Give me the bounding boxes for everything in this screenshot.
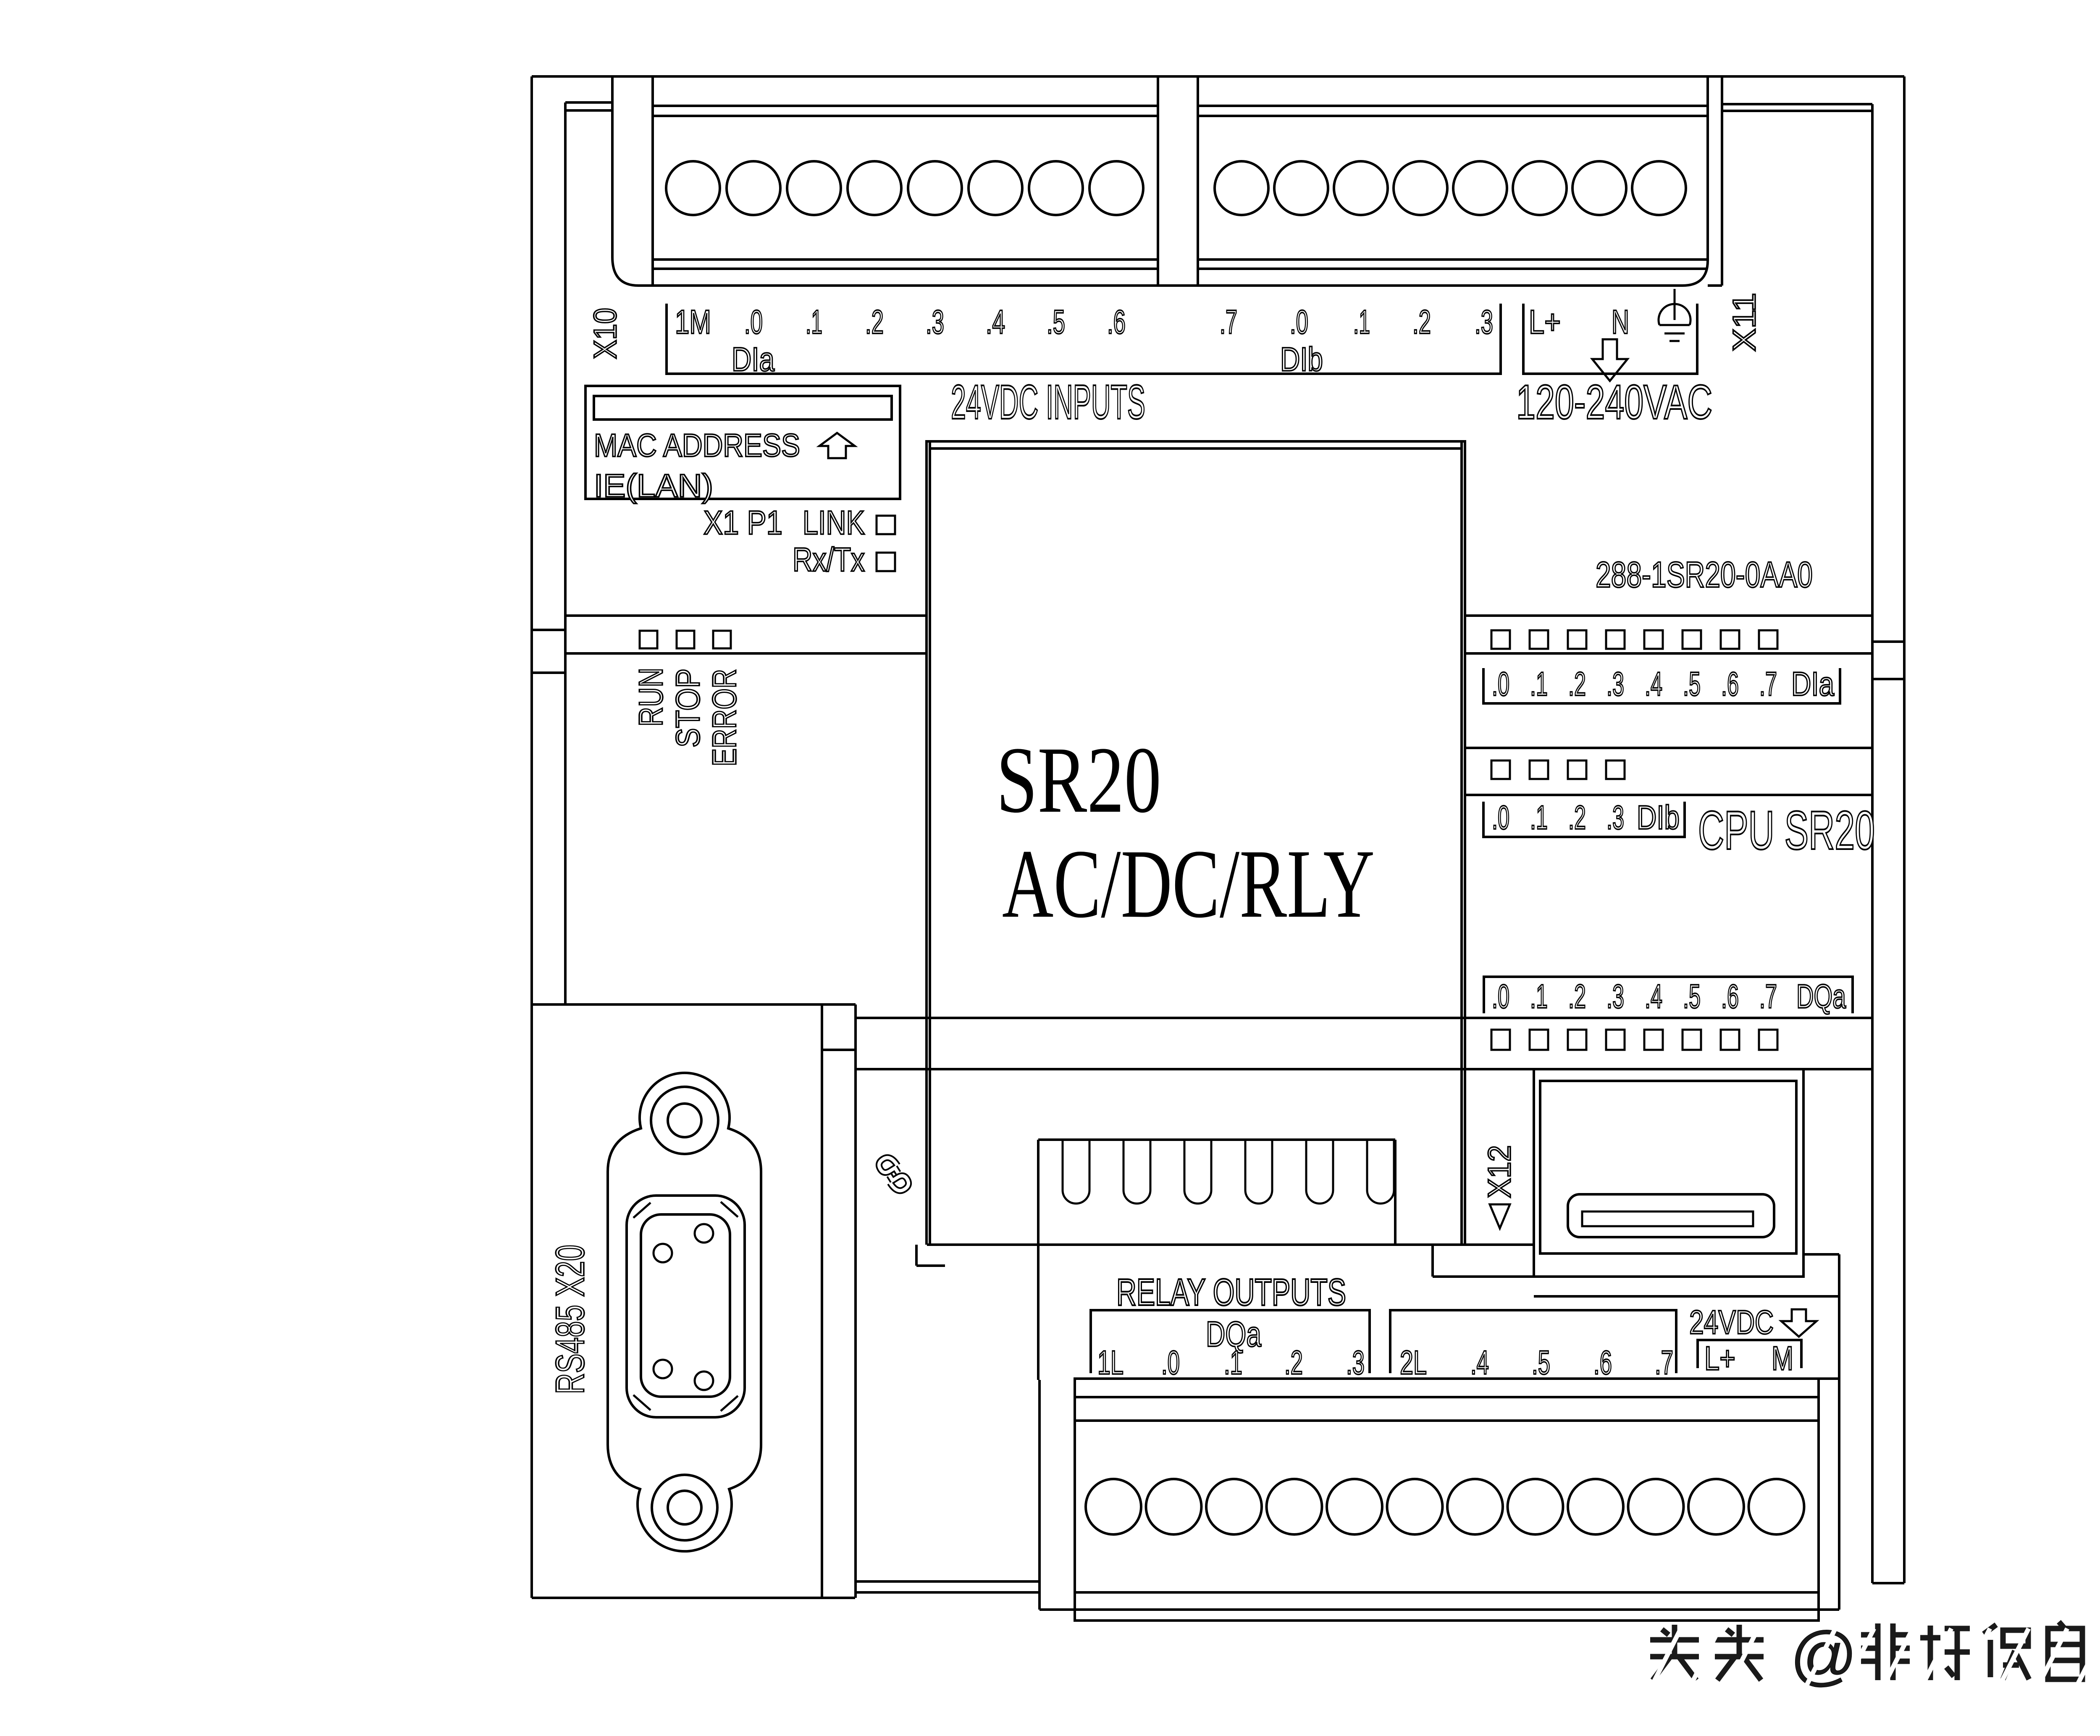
svg-text:N: N [1612, 303, 1629, 341]
svg-text:IE(LAN): IE(LAN) [594, 468, 713, 504]
svg-text:.0: .0 [1290, 303, 1308, 341]
svg-text:.7: .7 [1655, 1344, 1673, 1381]
svg-text:.3: .3 [926, 303, 944, 341]
svg-text:.1: .1 [1224, 1344, 1242, 1381]
svg-text:ERROR: ERROR [706, 669, 743, 766]
svg-text:1L: 1L [1097, 1344, 1123, 1381]
svg-text:DIb: DIb [1637, 799, 1680, 836]
svg-text:.1: .1 [1530, 978, 1548, 1015]
svg-text:.0: .0 [1492, 799, 1509, 836]
svg-text:DIa: DIa [732, 341, 774, 378]
svg-text:1M: 1M [675, 303, 711, 341]
svg-text:.6: .6 [1107, 303, 1126, 341]
svg-text:X1 P1: X1 P1 [703, 504, 782, 541]
svg-text:RS485 X20: RS485 X20 [548, 1245, 593, 1394]
svg-text:.1: .1 [1353, 303, 1370, 341]
svg-text:24VDC: 24VDC [1689, 1303, 1774, 1341]
svg-text:.2: .2 [1568, 665, 1586, 703]
svg-text:.2: .2 [1284, 1344, 1303, 1381]
svg-text:.1: .1 [1530, 799, 1548, 836]
svg-text:120-240VAC: 120-240VAC [1516, 375, 1712, 429]
svg-text:24VDC INPUTS: 24VDC INPUTS [951, 375, 1145, 429]
svg-text:.0: .0 [744, 303, 763, 341]
svg-text:.4: .4 [1645, 665, 1662, 703]
svg-text:.7: .7 [1220, 303, 1237, 341]
svg-text:M: M [1772, 1340, 1793, 1377]
svg-text:L+: L+ [1529, 303, 1561, 341]
svg-text:AC/DC/RLY: AC/DC/RLY [1002, 829, 1375, 938]
svg-text:.2: .2 [865, 303, 884, 341]
svg-text:Rx/Tx: Rx/Tx [793, 541, 865, 578]
svg-text:DIb: DIb [1280, 341, 1323, 378]
svg-text:.2: .2 [1568, 799, 1586, 836]
svg-text:X12: X12 [1482, 1145, 1517, 1198]
svg-text:.4: .4 [1645, 978, 1662, 1015]
svg-text:2L: 2L [1400, 1344, 1427, 1381]
svg-text:.3: .3 [1475, 303, 1493, 341]
svg-text:LINK: LINK [803, 504, 865, 541]
svg-text:.5: .5 [1047, 303, 1065, 341]
svg-text:.1: .1 [1530, 665, 1548, 703]
svg-text:.3: .3 [1606, 665, 1624, 703]
svg-text:.0: .0 [1492, 978, 1509, 1015]
svg-text:SR20: SR20 [996, 727, 1161, 832]
svg-text:.6: .6 [1593, 1344, 1612, 1381]
svg-text:MAC ADDRESS: MAC ADDRESS [594, 427, 800, 464]
svg-text:RUN: RUN [632, 668, 669, 726]
svg-text:.3: .3 [1346, 1344, 1365, 1381]
svg-text:.2: .2 [1568, 978, 1586, 1015]
svg-text:DQa: DQa [1796, 978, 1846, 1015]
svg-text:X10: X10 [588, 308, 623, 359]
svg-text:.6: .6 [1721, 665, 1739, 703]
svg-text:.4: .4 [986, 303, 1005, 341]
svg-text:.3: .3 [1606, 799, 1624, 836]
svg-text:.1: .1 [806, 303, 822, 341]
svg-text:.5: .5 [1683, 978, 1701, 1015]
svg-text:.0: .0 [1492, 665, 1509, 703]
svg-text:288-1SR20-0AA0: 288-1SR20-0AA0 [1596, 555, 1813, 595]
svg-text:DIa: DIa [1791, 665, 1834, 703]
svg-text:.3: .3 [1606, 978, 1624, 1015]
svg-text:.7: .7 [1759, 665, 1777, 703]
svg-text:.5: .5 [1683, 665, 1701, 703]
svg-text:.0: .0 [1161, 1344, 1180, 1381]
svg-text:L+: L+ [1704, 1340, 1735, 1377]
svg-text:.5: .5 [1532, 1344, 1550, 1381]
svg-text:STOP: STOP [669, 669, 706, 747]
svg-text:.7: .7 [1759, 978, 1777, 1015]
svg-text:CPU SR20: CPU SR20 [1698, 800, 1875, 861]
svg-text:.6: .6 [1721, 978, 1739, 1015]
svg-text:.2: .2 [1412, 303, 1431, 341]
svg-text:.4: .4 [1470, 1344, 1489, 1381]
svg-text:X11: X11 [1727, 293, 1762, 351]
svg-text:RELAY OUTPUTS: RELAY OUTPUTS [1116, 1272, 1346, 1314]
